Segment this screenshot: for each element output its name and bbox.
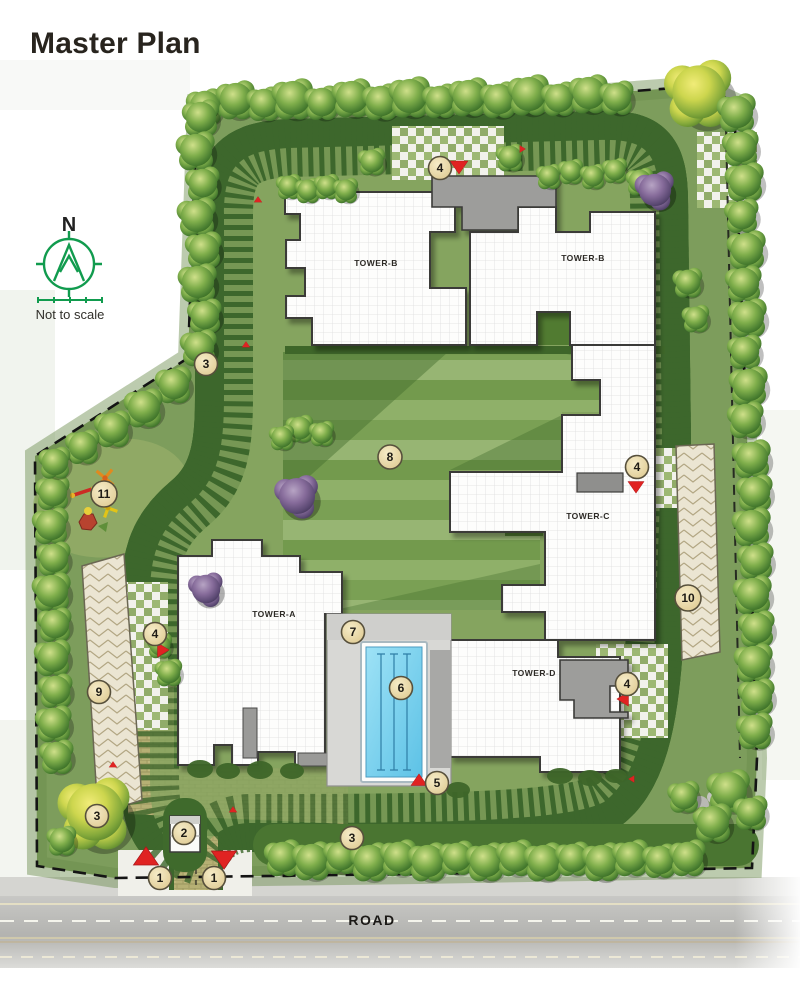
tree-icon bbox=[602, 158, 629, 184]
marker-2: 2 bbox=[173, 822, 196, 845]
marker-label: 9 bbox=[96, 685, 103, 699]
marker-label: 1 bbox=[157, 871, 164, 885]
tree-icon bbox=[309, 421, 336, 447]
tree-icon bbox=[682, 305, 711, 334]
marker-label: 3 bbox=[203, 357, 210, 371]
marker-label: 8 bbox=[387, 450, 394, 464]
hedge-shrub bbox=[578, 770, 602, 786]
hedge-shrub bbox=[247, 761, 273, 779]
hedge-shrub bbox=[547, 768, 573, 784]
tree-icon bbox=[35, 476, 72, 512]
tree-icon bbox=[667, 781, 701, 815]
marker-label: 11 bbox=[98, 487, 111, 501]
tree-icon bbox=[732, 439, 774, 480]
tree-icon bbox=[717, 93, 759, 134]
marker-4-right: 4 bbox=[626, 456, 649, 479]
tree-icon bbox=[736, 474, 775, 512]
tree-icon bbox=[155, 659, 184, 688]
tree-icon bbox=[38, 447, 72, 481]
tower-d-label: TOWER-D bbox=[512, 668, 556, 678]
marker-9: 9 bbox=[88, 681, 111, 704]
tower-a-building bbox=[178, 540, 342, 765]
hedge-shrub bbox=[605, 769, 627, 783]
tree-icon bbox=[736, 712, 775, 750]
tree-icon bbox=[728, 298, 770, 339]
marker-6: 6 bbox=[390, 677, 413, 700]
tree-icon bbox=[187, 299, 224, 335]
tree-icon bbox=[738, 678, 777, 716]
tree-icon bbox=[32, 507, 71, 545]
tree-icon bbox=[725, 162, 767, 203]
tree-icon bbox=[725, 265, 764, 303]
tree-icon bbox=[733, 796, 770, 832]
tree-icon bbox=[46, 826, 78, 857]
tower-b-left-label: TOWER-B bbox=[354, 258, 398, 268]
master-plan-canvas: ROAD bbox=[0, 0, 800, 995]
marker-3-bottom: 3 bbox=[341, 827, 364, 850]
tree-icon bbox=[185, 167, 222, 203]
tree-icon bbox=[727, 401, 766, 439]
marker-label: 7 bbox=[350, 625, 357, 639]
marker-label: 10 bbox=[681, 591, 695, 605]
tree-icon bbox=[734, 643, 776, 684]
tree-icon bbox=[32, 572, 74, 613]
tree-icon bbox=[36, 542, 73, 578]
tree-icon bbox=[727, 230, 769, 271]
basement-ramp-right bbox=[676, 444, 720, 660]
marker-5: 5 bbox=[426, 772, 449, 795]
marker-label: 6 bbox=[398, 681, 405, 695]
hedge-shrub bbox=[280, 763, 304, 779]
tree-icon bbox=[733, 575, 775, 616]
tree-icon bbox=[738, 610, 777, 648]
tower-b-right-label: TOWER-B bbox=[561, 253, 605, 263]
master-plan-page: ROAD bbox=[0, 0, 800, 995]
marker-10: 10 bbox=[675, 585, 701, 611]
marker-label: 4 bbox=[624, 677, 631, 691]
marker-11: 11 bbox=[91, 481, 117, 507]
marker-label: 5 bbox=[434, 776, 441, 790]
tree-icon bbox=[599, 81, 636, 117]
tree-icon bbox=[39, 740, 76, 776]
tree-icon bbox=[693, 803, 735, 844]
marker-4-left: 4 bbox=[144, 623, 167, 646]
tree-icon bbox=[178, 263, 220, 304]
not-to-scale-label: Not to scale bbox=[36, 307, 105, 322]
tree-icon bbox=[732, 507, 774, 548]
marker-label: 4 bbox=[437, 161, 444, 175]
marker-7: 7 bbox=[342, 621, 365, 644]
service-structure-c bbox=[577, 473, 623, 492]
tree-icon bbox=[737, 542, 776, 580]
marker-label: 3 bbox=[349, 831, 356, 845]
wash-top bbox=[0, 60, 190, 110]
tree-icon bbox=[37, 608, 74, 644]
tree-icon bbox=[672, 268, 704, 299]
tree-icon bbox=[269, 425, 296, 451]
tree-icon bbox=[358, 148, 387, 177]
marker-label: 1 bbox=[211, 871, 218, 885]
tree-icon bbox=[724, 199, 761, 235]
chimney-stub bbox=[243, 708, 257, 758]
tree-icon bbox=[669, 839, 708, 877]
marker-label: 2 bbox=[181, 826, 188, 840]
tower-a-label: TOWER-A bbox=[252, 609, 296, 619]
compass-dial bbox=[36, 231, 102, 297]
marker-label: 4 bbox=[152, 627, 159, 641]
tree-icon bbox=[38, 674, 75, 710]
road-fade bbox=[735, 875, 800, 970]
marker-4-bottom-right: 4 bbox=[616, 673, 639, 696]
hedge-shrub bbox=[187, 760, 213, 778]
marker-3-bottom-left: 3 bbox=[86, 805, 109, 828]
tower-c-label: TOWER-C bbox=[566, 511, 610, 521]
page-title: Master Plan bbox=[30, 27, 201, 60]
tree-icon bbox=[35, 705, 74, 743]
marker-label: 4 bbox=[634, 460, 641, 474]
hedge-shrub bbox=[216, 763, 240, 779]
marker-1-right: 1 bbox=[203, 867, 226, 890]
tree-icon bbox=[176, 131, 218, 172]
pool-deck-shade bbox=[430, 650, 451, 768]
tree-icon bbox=[722, 129, 761, 167]
marker-1-left: 1 bbox=[149, 867, 172, 890]
marker-3-left: 3 bbox=[195, 353, 218, 376]
tree-icon bbox=[34, 639, 73, 677]
road-label: ROAD bbox=[348, 912, 395, 928]
tree-icon bbox=[729, 366, 771, 407]
tree-icon bbox=[727, 335, 764, 371]
tree-icon bbox=[333, 178, 360, 204]
marker-8: 8 bbox=[378, 445, 402, 469]
marker-label: 3 bbox=[94, 809, 101, 823]
compass-needle-icon bbox=[54, 245, 84, 281]
hedge-shrub bbox=[446, 782, 470, 798]
compass-ticks bbox=[36, 231, 102, 297]
marker-4-top: 4 bbox=[429, 157, 452, 180]
